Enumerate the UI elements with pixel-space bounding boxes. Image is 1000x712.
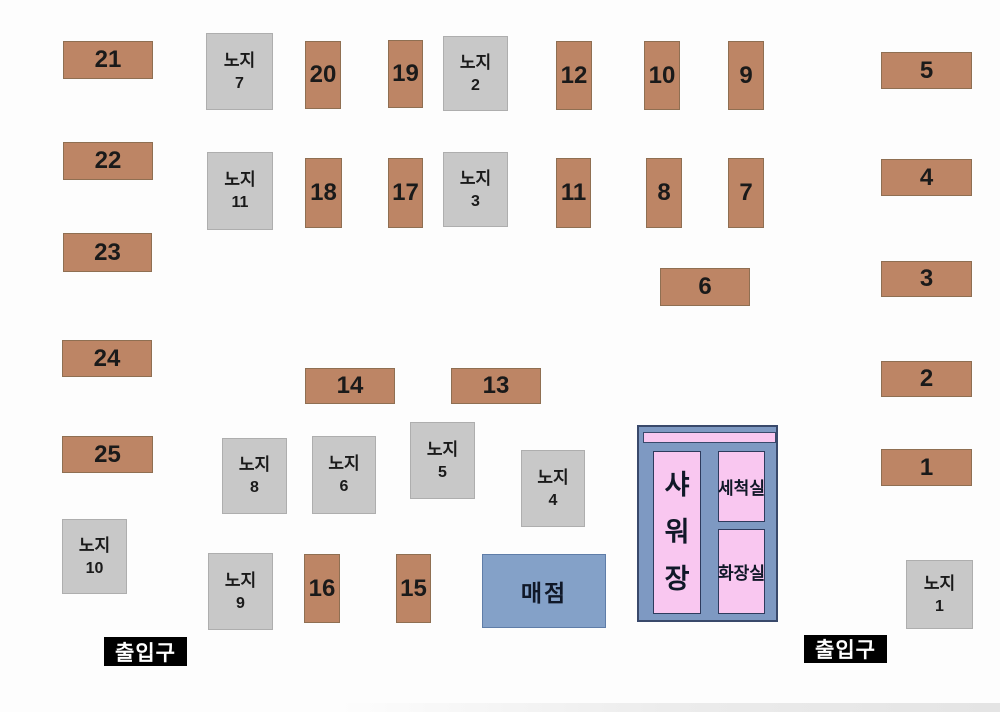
site-number: 19 <box>392 60 419 88</box>
open-site-number: 2 <box>471 78 480 94</box>
entrance-text: 출입구 <box>115 637 176 667</box>
site-number: 8 <box>657 179 670 207</box>
room-label: 화장실 <box>718 559 765 584</box>
site-box-4: 4 <box>881 159 972 196</box>
entrance-label-left: 출입구 <box>104 637 187 666</box>
open-site-box-7: 노지7 <box>206 33 273 110</box>
site-box-7: 7 <box>728 158 764 228</box>
site-box-25: 25 <box>62 436 153 473</box>
site-number: 3 <box>920 265 933 293</box>
site-number: 14 <box>337 372 364 400</box>
site-number: 23 <box>94 239 121 267</box>
site-box-5: 5 <box>881 52 972 89</box>
open-site-number: 11 <box>232 195 249 211</box>
site-number: 12 <box>561 62 588 90</box>
open-site-number: 3 <box>471 194 480 210</box>
site-box-23: 23 <box>63 233 152 272</box>
site-box-10: 10 <box>644 41 680 110</box>
site-box-6: 6 <box>660 268 750 306</box>
site-box-1: 1 <box>881 449 972 486</box>
site-box-20: 20 <box>305 41 341 109</box>
open-site-number: 10 <box>86 561 104 577</box>
site-box-19: 19 <box>388 40 423 108</box>
open-site-box-2: 노지2 <box>443 36 508 111</box>
open-site-label: 노지 <box>239 456 270 473</box>
site-box-24: 24 <box>62 340 152 377</box>
open-site-box-4: 노지4 <box>521 450 585 527</box>
open-site-label: 노지 <box>460 170 491 187</box>
site-number: 13 <box>483 372 510 400</box>
site-box-21: 21 <box>63 41 153 79</box>
room-label: 세척실 <box>718 474 765 499</box>
site-number: 18 <box>310 179 337 207</box>
store-box: 매점 <box>482 554 606 628</box>
site-box-13: 13 <box>451 368 541 404</box>
entrance-label-right: 출입구 <box>804 635 887 663</box>
open-site-number: 1 <box>935 599 944 615</box>
open-site-box-6: 노지6 <box>312 436 376 514</box>
site-number: 7 <box>739 179 752 207</box>
open-site-box-11: 노지11 <box>207 152 273 230</box>
site-box-14: 14 <box>305 368 395 404</box>
shower-room: 샤워장 <box>653 451 701 614</box>
site-number: 9 <box>739 62 752 90</box>
open-site-box-10: 노지10 <box>62 519 127 594</box>
open-site-box-9: 노지9 <box>208 553 273 630</box>
open-site-label: 노지 <box>225 572 256 589</box>
open-site-number: 5 <box>438 465 447 481</box>
site-number: 11 <box>561 179 586 207</box>
open-site-number: 7 <box>235 76 244 92</box>
site-box-16: 16 <box>304 554 340 623</box>
open-site-box-5: 노지5 <box>410 422 475 499</box>
open-site-number: 8 <box>250 480 259 496</box>
open-site-label: 노지 <box>460 54 491 71</box>
site-number: 6 <box>698 273 711 301</box>
site-box-12: 12 <box>556 41 592 110</box>
site-box-2: 2 <box>881 361 972 397</box>
facility-top-bar <box>643 432 776 443</box>
site-box-17: 17 <box>388 158 423 228</box>
room-label-char: 장 <box>665 566 690 593</box>
open-site-label: 노지 <box>537 469 568 486</box>
site-number: 21 <box>95 46 122 74</box>
site-number: 25 <box>94 441 121 469</box>
open-site-label: 노지 <box>79 537 110 554</box>
open-site-number: 9 <box>236 596 245 612</box>
facility-building: 샤워장세척실화장실 <box>637 425 778 622</box>
site-number: 4 <box>920 164 933 192</box>
site-number: 24 <box>94 345 121 373</box>
open-site-box-8: 노지8 <box>222 438 287 514</box>
site-box-9: 9 <box>728 41 764 110</box>
site-number: 5 <box>920 57 933 85</box>
open-site-box-3: 노지3 <box>443 152 508 227</box>
site-number: 15 <box>400 575 427 603</box>
open-site-label: 노지 <box>224 171 255 188</box>
room-label-char: 워 <box>665 519 690 546</box>
site-number: 10 <box>649 62 676 90</box>
site-box-3: 3 <box>881 261 972 297</box>
site-number: 22 <box>95 147 122 175</box>
campground-map: 2120191210952218171187423632414132251161… <box>0 0 1000 712</box>
site-box-15: 15 <box>396 554 431 623</box>
open-site-label: 노지 <box>328 455 359 472</box>
site-box-11: 11 <box>556 158 591 228</box>
site-box-22: 22 <box>63 142 153 180</box>
open-site-box-1: 노지1 <box>906 560 973 629</box>
open-site-label: 노지 <box>427 441 458 458</box>
store-label: 매점 <box>521 574 567 608</box>
open-site-number: 4 <box>549 493 558 509</box>
photo-artifact <box>340 703 1000 712</box>
toilet-room: 화장실 <box>718 529 765 614</box>
site-box-8: 8 <box>646 158 682 228</box>
site-number: 20 <box>310 61 337 89</box>
site-number: 1 <box>920 454 933 482</box>
site-box-18: 18 <box>305 158 342 228</box>
entrance-text: 출입구 <box>815 634 876 664</box>
site-number: 17 <box>392 179 419 207</box>
room-label-char: 샤 <box>665 472 690 499</box>
site-number: 2 <box>920 365 933 393</box>
open-site-label: 노지 <box>224 52 255 69</box>
site-number: 16 <box>309 575 336 603</box>
open-site-number: 6 <box>340 479 349 495</box>
washing-room: 세척실 <box>718 451 765 522</box>
open-site-label: 노지 <box>924 575 955 592</box>
